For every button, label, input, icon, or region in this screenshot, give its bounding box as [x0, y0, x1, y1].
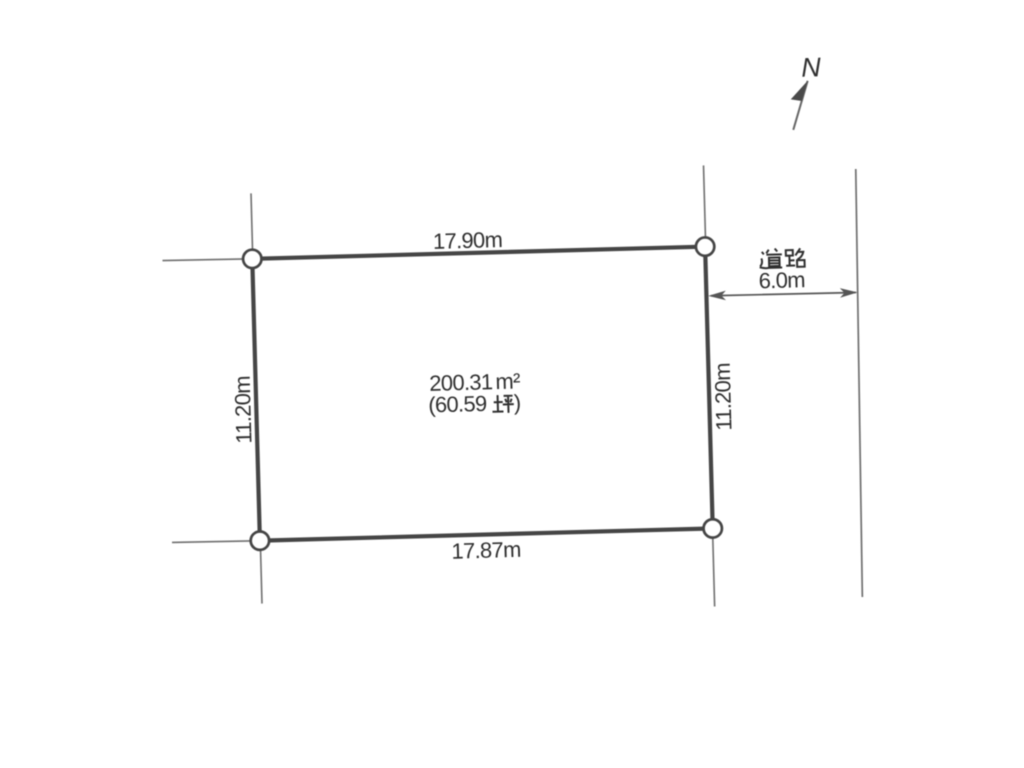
svg-text:11.20m: 11.20m — [710, 363, 737, 431]
svg-text:17.90m: 17.90m — [433, 227, 503, 254]
svg-text:N: N — [801, 52, 822, 83]
svg-text:11.20m: 11.20m — [230, 376, 257, 444]
svg-text:6.0m: 6.0m — [758, 267, 805, 293]
svg-text:(60.59: (60.59 — [428, 391, 487, 418]
svg-text:17.87m: 17.87m — [451, 537, 521, 564]
svg-text:): ) — [513, 390, 521, 415]
